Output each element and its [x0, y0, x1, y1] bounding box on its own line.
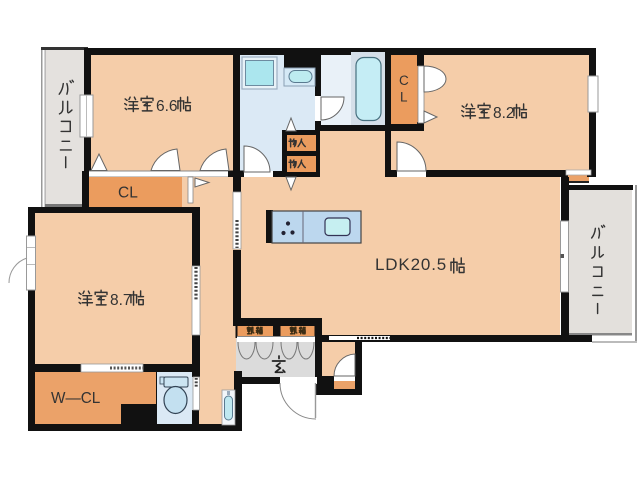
svg-text:L: L — [400, 90, 408, 105]
svg-text:W—CL: W—CL — [51, 390, 100, 407]
svg-text:8.2: 8.2 — [493, 105, 515, 122]
svg-text:6.6: 6.6 — [156, 98, 178, 115]
svg-text:8.7: 8.7 — [110, 292, 132, 309]
svg-text:LDK20.5: LDK20.5 — [375, 255, 447, 274]
svg-text:C: C — [399, 73, 409, 88]
svg-text:CL: CL — [118, 185, 138, 202]
